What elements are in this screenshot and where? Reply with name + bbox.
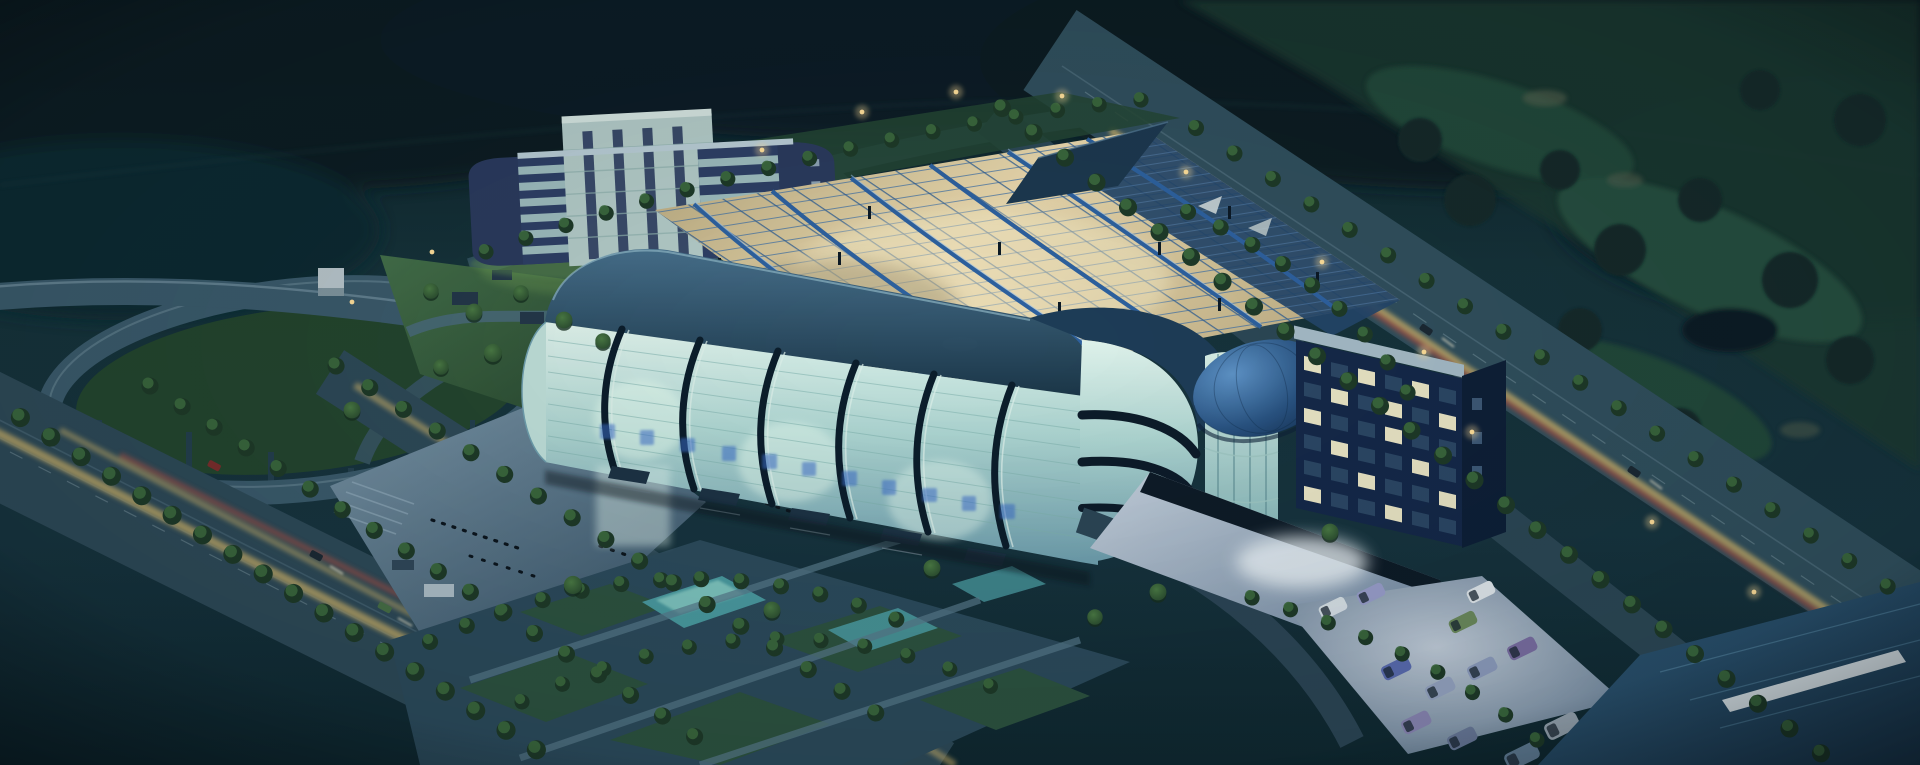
rendering-canvas <box>0 0 1920 765</box>
vignette-overlay <box>0 0 1920 765</box>
